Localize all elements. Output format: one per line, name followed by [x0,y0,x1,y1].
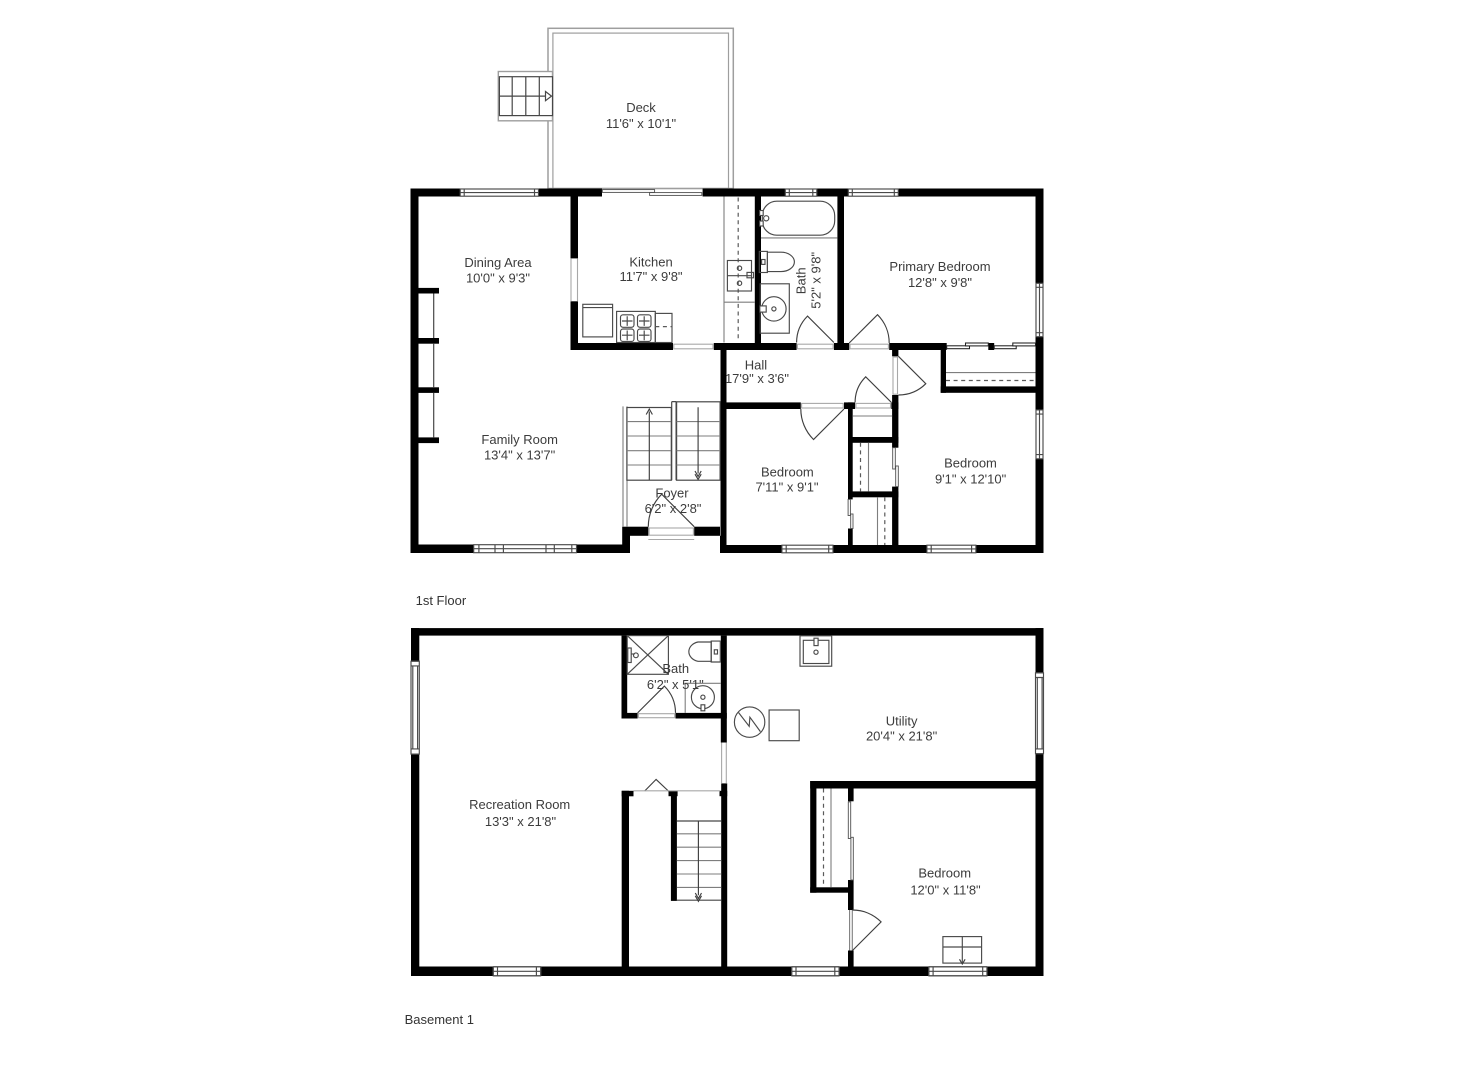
svg-text:Foyer: Foyer [655,486,689,501]
svg-text:Bedroom: Bedroom [761,465,814,480]
svg-text:5'2" x 9'8": 5'2" x 9'8" [808,251,823,308]
svg-text:9'1" x 12'10": 9'1" x 12'10" [935,472,1007,487]
svg-text:Recreation Room: Recreation Room [469,797,570,812]
svg-text:Dining Area: Dining Area [464,255,532,270]
svg-text:17'9" x 3'6": 17'9" x 3'6" [725,371,789,386]
svg-text:Bedroom: Bedroom [918,866,971,881]
svg-text:12'0" x 11'8": 12'0" x 11'8" [910,883,981,898]
svg-text:11'6" x 10'1": 11'6" x 10'1" [606,116,677,131]
svg-text:12'8" x 9'8": 12'8" x 9'8" [908,275,972,290]
svg-text:Deck: Deck [626,100,656,115]
svg-text:6'2" x 2'8": 6'2" x 2'8" [645,501,702,516]
svg-text:10'0" x 9'3": 10'0" x 9'3" [466,271,530,286]
svg-text:Primary Bedroom: Primary Bedroom [889,259,990,274]
svg-text:13'4" x 13'7": 13'4" x 13'7" [484,448,556,463]
svg-text:Bedroom: Bedroom [944,456,997,471]
svg-text:Bath: Bath [662,661,689,676]
svg-text:Utility: Utility [886,714,918,729]
svg-text:Bath: Bath [794,267,809,294]
svg-text:6'2" x 5'1": 6'2" x 5'1" [647,677,704,692]
svg-text:13'3" x 21'8": 13'3" x 21'8" [485,814,557,829]
svg-text:Kitchen: Kitchen [629,255,672,270]
svg-text:11'7" x 9'8": 11'7" x 9'8" [619,269,682,284]
svg-text:Basement 1: Basement 1 [405,1012,474,1027]
svg-text:7'11" x 9'1": 7'11" x 9'1" [755,480,818,495]
svg-text:Family Room: Family Room [481,432,558,447]
svg-text:1st Floor: 1st Floor [416,593,467,608]
svg-text:20'4" x 21'8": 20'4" x 21'8" [866,729,938,744]
